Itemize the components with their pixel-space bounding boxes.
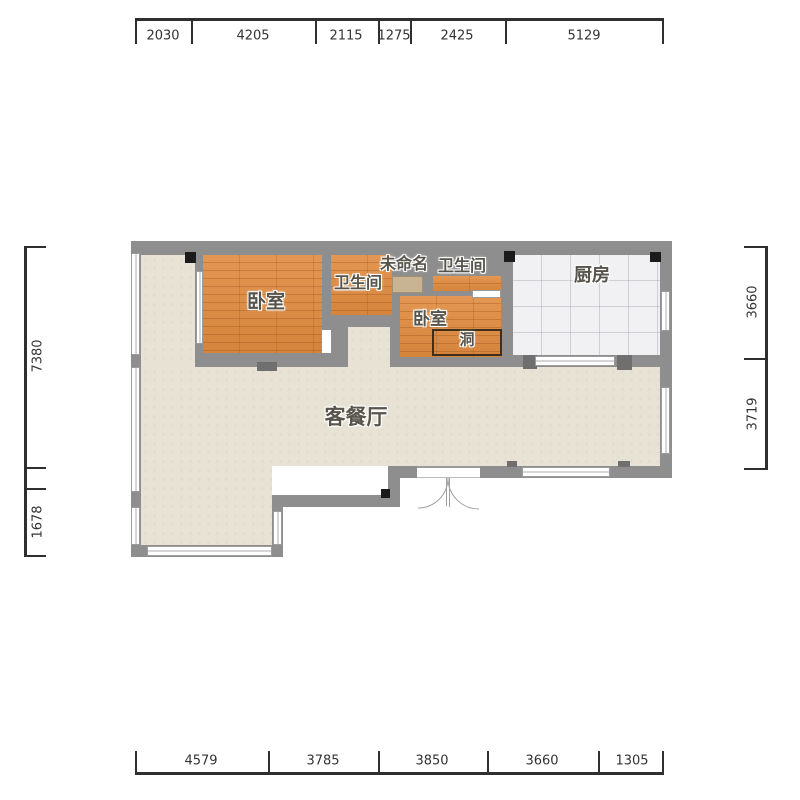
wall-stub — [507, 461, 517, 467]
window — [273, 511, 282, 545]
window — [131, 367, 140, 492]
floorplan-canvas: 2030 4205 2115 1275 2425 5129 4579 3785 … — [0, 0, 800, 800]
room-label-hole: 洞 — [459, 329, 474, 350]
dim-tick — [24, 555, 46, 557]
dim-label: 1678 — [31, 505, 46, 538]
dim-tick — [598, 751, 600, 775]
living-floor — [141, 466, 272, 545]
wall-stub — [257, 362, 277, 371]
room-label-bath2: 卫生间 — [438, 252, 486, 276]
corner-marker — [185, 252, 196, 263]
window — [196, 271, 203, 344]
dim-tick — [744, 468, 766, 470]
corner-marker — [650, 252, 661, 262]
dim-tick — [24, 488, 46, 490]
dim-tick — [744, 358, 766, 360]
room-label-living: 客餐厅 — [325, 401, 388, 431]
dim-tick — [378, 751, 380, 775]
dim-label: 1305 — [615, 754, 648, 769]
dim-label: 1275 — [377, 29, 410, 44]
dim-tick — [487, 751, 489, 775]
dim-tick — [135, 751, 137, 775]
dim-tick — [662, 18, 664, 44]
room-label-unnamed: 未命名 — [380, 250, 428, 274]
wall-stub — [618, 461, 630, 467]
entry-door — [417, 466, 480, 478]
dimension-line — [135, 18, 664, 21]
dim-tick — [24, 246, 46, 248]
dim-label: 2425 — [440, 29, 473, 44]
living-floor — [348, 327, 390, 367]
wall-segment — [501, 255, 513, 368]
living-floor — [141, 255, 195, 367]
dim-label: 3660 — [746, 285, 761, 318]
window — [661, 387, 670, 454]
dim-tick — [662, 751, 664, 775]
window — [131, 507, 140, 545]
dim-label: 2115 — [329, 29, 362, 44]
dim-label: 4579 — [184, 754, 217, 769]
wall-segment — [331, 315, 348, 367]
bath2-floor — [433, 276, 501, 291]
room-label-bath1: 卫生间 — [334, 269, 382, 293]
dimension-line — [24, 246, 27, 557]
window — [661, 291, 670, 331]
dim-tick — [505, 18, 507, 44]
dim-label: 3660 — [525, 754, 558, 769]
dim-label: 3719 — [746, 397, 761, 430]
unnamed-floor — [392, 276, 423, 293]
dimension-line — [135, 772, 664, 775]
window — [522, 467, 610, 477]
dim-tick — [744, 246, 766, 248]
window — [535, 356, 615, 366]
dim-label: 4205 — [236, 29, 269, 44]
window — [131, 253, 140, 355]
dim-label: 7380 — [31, 339, 46, 372]
corner-marker — [381, 489, 390, 498]
dim-tick — [268, 751, 270, 775]
corner-marker — [504, 251, 515, 262]
dim-tick — [315, 18, 317, 44]
room-label-kitchen: 厨房 — [574, 261, 610, 287]
room-label-bedroom1: 卧室 — [247, 287, 285, 314]
dim-label: 3785 — [306, 754, 339, 769]
wall-stub — [617, 355, 632, 370]
living-floor — [141, 367, 660, 466]
room-label-bedroom2: 卧室 — [413, 305, 447, 330]
dim-label: 3850 — [415, 754, 448, 769]
dim-label: 2030 — [146, 29, 179, 44]
window — [147, 546, 272, 556]
window — [472, 290, 501, 298]
dim-tick — [135, 18, 137, 44]
dim-tick — [24, 467, 46, 469]
dim-label: 5129 — [567, 29, 600, 44]
dim-tick — [191, 18, 193, 44]
